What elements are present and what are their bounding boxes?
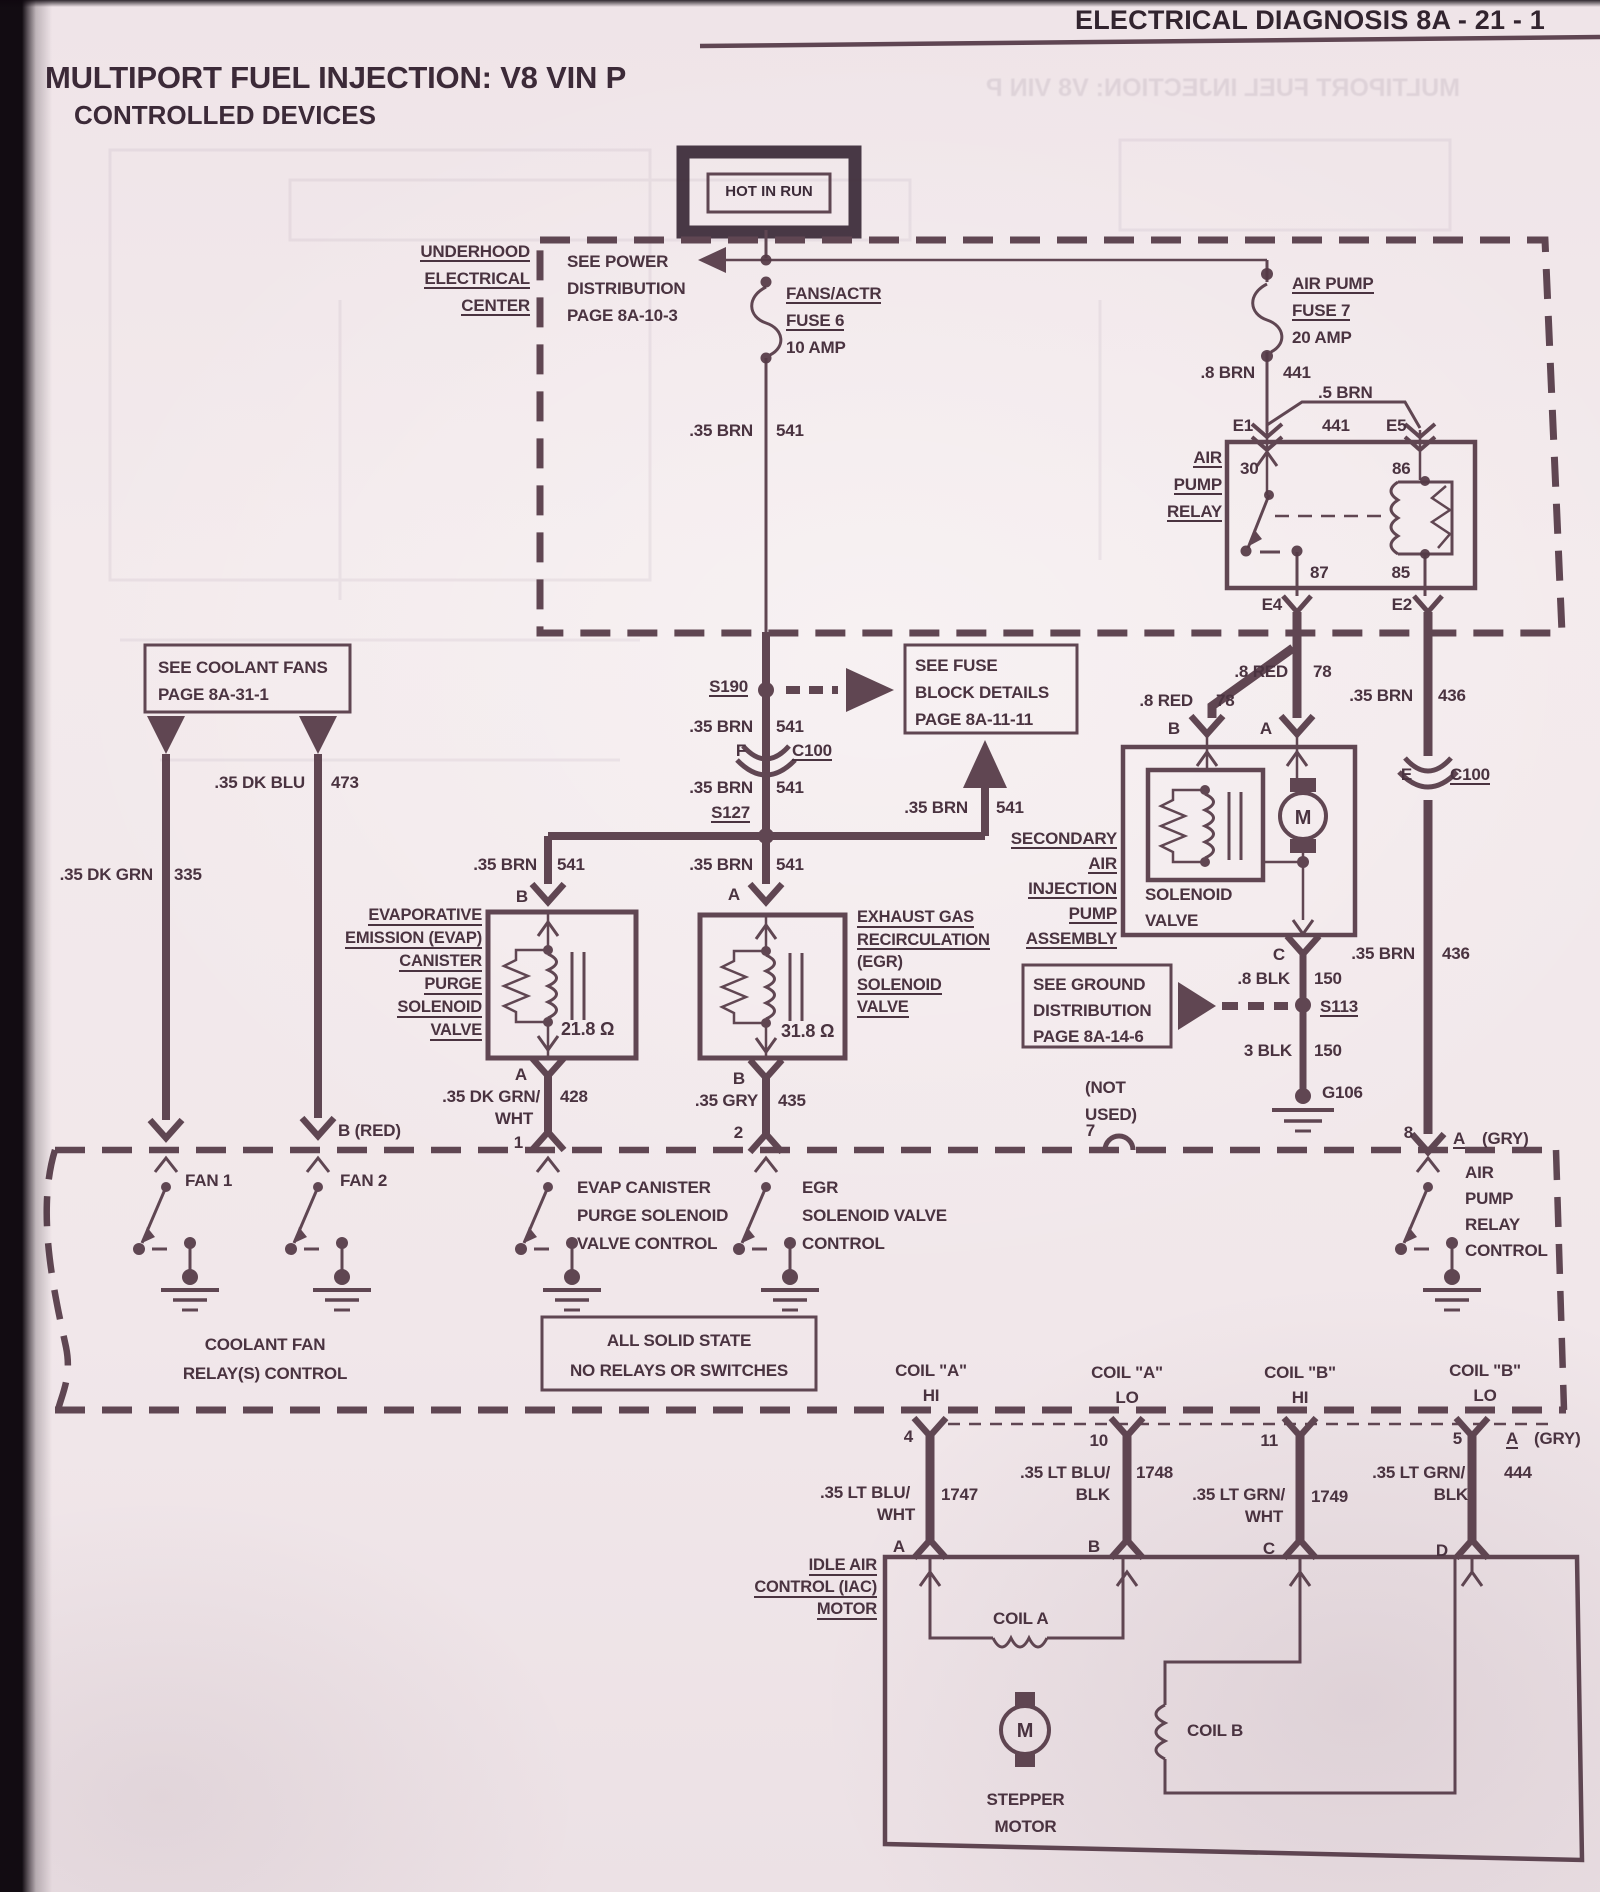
wire-wht: WHT	[451, 1106, 533, 1132]
wire-78-b: 78	[1216, 688, 1266, 714]
ecm-pin-a-gry-top: (GRY)	[1482, 1126, 1572, 1152]
ecm-pin-11: 11	[1251, 1428, 1278, 1454]
wire-35ltblublk2: BLK	[1028, 1482, 1110, 1508]
pin-e4: E4	[1238, 592, 1282, 618]
splice-s113: S113	[1320, 994, 1390, 1020]
ground-g106: G106	[1322, 1080, 1402, 1106]
relay-30: 30	[1240, 456, 1280, 482]
coil-b-winding	[1156, 1705, 1165, 1759]
ecm-pin-a-gry-bot: (GRY)	[1534, 1426, 1600, 1452]
coolant-fan-relay-control: COOLANT FANRELAY(S) CONTROL	[135, 1330, 395, 1388]
motor-m-assembly: M	[1283, 805, 1323, 831]
ecm-pin-10b: 10	[1081, 1428, 1108, 1454]
ecm-pin-a-gry-bot-a: A	[1506, 1426, 1530, 1452]
splice-s113-dot	[1295, 997, 1311, 1013]
evap-control-label: EVAP CANISTERPURGE SOLENOIDVALVE CONTROL	[577, 1174, 807, 1258]
wire-8brn: .8 BRN	[1145, 360, 1255, 386]
ecm-pin-4b: 4	[891, 1424, 913, 1450]
iac-conn-a: A	[883, 1534, 905, 1560]
wire-35brn-2: .35 BRN	[651, 714, 753, 740]
asm-conn-b: B	[1148, 716, 1180, 742]
wire-8red-a: .8 RED	[1196, 659, 1288, 685]
e4-chevron	[1283, 596, 1311, 612]
wire-1749: 1749	[1311, 1484, 1381, 1510]
wire-335: 335	[174, 862, 234, 888]
wire-78-a: 78	[1313, 659, 1363, 685]
relay-86: 86	[1392, 456, 1432, 482]
book-binding-shadow	[0, 0, 52, 1892]
wire-35brn436-dn: .35 BRN	[1313, 941, 1415, 967]
ecm-pin-1: 1	[501, 1130, 523, 1156]
fan1-label: FAN 1	[185, 1168, 275, 1194]
motor-m-stepper: M	[1005, 1718, 1045, 1744]
wire-35brn-left: .35 BRN	[435, 852, 537, 878]
coil-a-winding	[993, 1638, 1047, 1647]
g106-ground	[1272, 1110, 1334, 1131]
splice-s127: S127	[688, 800, 750, 826]
ecm-pin-8: 8	[1391, 1120, 1413, 1146]
splice-s190: S190	[686, 674, 748, 700]
wire-35ltgrnblk2: BLK	[1386, 1482, 1468, 1508]
pin-e2: E2	[1368, 592, 1412, 618]
stepper-motor-label: STEPPERMOTOR	[948, 1786, 1103, 1840]
fuse-block-arrow	[846, 668, 894, 712]
see-fuse-block: SEE FUSEBLOCK DETAILSPAGE 8A-11-11	[915, 652, 1090, 733]
fuse-block-up-arrow	[963, 740, 1007, 788]
wire-428: 428	[560, 1084, 620, 1110]
see-ground-distribution: SEE GROUNDDISTRIBUTIONPAGE 8A-14-6	[1033, 972, 1183, 1050]
wire-35ltbluwht2: WHT	[833, 1502, 915, 1528]
wire-444: 444	[1504, 1460, 1570, 1486]
coil-b-lo: COIL "B"LO	[1429, 1358, 1541, 1408]
wire-541-1: 541	[776, 418, 836, 444]
solenoid-valve-label: SOLENOIDVALVE	[1145, 882, 1285, 934]
wire-541-3: 541	[776, 775, 836, 801]
pin10-b-red: B (RED)	[338, 1118, 458, 1144]
wire-5brn: .5 BRN	[1318, 380, 1428, 406]
wire-435: 435	[778, 1088, 838, 1114]
wire-541-right: 541	[996, 795, 1056, 821]
hot-in-run-label: HOT IN RUN	[708, 183, 830, 200]
coil-b-label: COIL B	[1187, 1718, 1297, 1744]
page-top-edge-shadow	[0, 0, 1600, 7]
page-header: ELECTRICAL DIAGNOSIS 8A - 21 - 1	[640, 5, 1545, 36]
wire-541-4: 541	[776, 852, 836, 878]
e2-chevron	[1414, 596, 1442, 612]
fans-actr-fuse: FANS/ACTRFUSE 610 AMP	[786, 280, 946, 361]
iac-conn-c: C	[1253, 1536, 1275, 1562]
page-title: MULTIPORT FUEL INJECTION: V8 VIN P	[45, 60, 626, 96]
air-pump-fuse: AIR PUMPFUSE 720 AMP	[1292, 270, 1452, 351]
scanned-manual-page: MULTIPORT FUEL INJECTION: V8 VIN P	[0, 0, 1600, 1892]
ecm-pin-2: 2	[721, 1120, 743, 1146]
coil-a-label: COIL A	[993, 1606, 1103, 1632]
wire-8red-b: .8 RED	[1101, 688, 1193, 714]
egr-conn-a: A	[708, 882, 740, 908]
evap-conn-b: B	[496, 884, 528, 910]
all-solid-state: ALL SOLID STATENO RELAYS OR SWITCHES	[550, 1326, 808, 1386]
wire-541-left: 541	[557, 852, 617, 878]
fan2-label: FAN 2	[340, 1168, 430, 1194]
conn-c100b: C100	[1450, 762, 1520, 788]
wire-35dkblu: .35 DK BLU	[183, 770, 305, 796]
coil-a-lo: COIL "A"LO	[1071, 1360, 1183, 1410]
wire-35brn-3: .35 BRN	[651, 775, 753, 801]
ecm-pin-a-gry-top-a: A	[1453, 1126, 1477, 1152]
not-used: (NOTUSED)	[1085, 1074, 1175, 1128]
air-pump-relay-control: AIRPUMPRELAYCONTROL	[1465, 1160, 1585, 1264]
pin-e1: E1	[1205, 413, 1253, 439]
wire-35gry: .35 GRY	[656, 1088, 758, 1114]
wire-150b: 150	[1314, 1038, 1374, 1064]
coil-b-hi: COIL "B"HI	[1244, 1360, 1356, 1410]
asm-conn-c: C	[1253, 942, 1285, 968]
relay-87: 87	[1310, 560, 1350, 586]
iac-motor-label: IDLE AIRCONTROL (IAC)MOTOR	[733, 1554, 877, 1620]
page-subtitle: CONTROLLED DEVICES	[74, 100, 376, 131]
coil-a-hi: COIL "A"HI	[875, 1358, 987, 1408]
iac-conn-b: B	[1078, 1534, 1100, 1560]
pin-e5: E5	[1386, 413, 1446, 439]
air-pump-relay-box	[1227, 430, 1475, 588]
underhood-electrical-center: UNDERHOODELECTRICALCENTER	[330, 238, 530, 319]
evap-ohms: 21.8 Ω	[561, 1016, 651, 1042]
wire-541-2: 541	[776, 714, 836, 740]
wire-150a: 150	[1314, 966, 1374, 992]
evap-solenoid-label: EVAPORATIVEEMISSION (EVAP)CANISTERPURGES…	[330, 904, 482, 1042]
conn-e: E	[1380, 762, 1412, 788]
wire-35brn-1: .35 BRN	[651, 418, 753, 444]
secondary-air-label: SECONDARYAIRINJECTIONPUMPASSEMBLY	[1005, 826, 1117, 951]
wire-35ltgrnwht2: WHT	[1201, 1504, 1283, 1530]
wire-473: 473	[331, 770, 391, 796]
wire-8blk: .8 BLK	[1198, 966, 1290, 992]
wire-35brn-right: .35 BRN	[866, 795, 968, 821]
g106-dot	[1295, 1088, 1311, 1104]
air-pump-relay: AIRPUMPRELAY	[1088, 444, 1222, 525]
egr-control-label: EGRSOLENOID VALVECONTROL	[802, 1174, 1012, 1258]
ecm-pin-7: 7	[1073, 1118, 1095, 1144]
wire-436-dn: 436	[1442, 941, 1502, 967]
header-rule	[700, 37, 1600, 46]
conn-c100a: C100	[792, 738, 862, 764]
wire-35brn-4: .35 BRN	[651, 852, 753, 878]
relay-85: 85	[1368, 560, 1410, 586]
wire-35brn436-up: .35 BRN	[1311, 683, 1413, 709]
ecm-pin-5: 5	[1440, 1426, 1462, 1452]
asm-conn-a: A	[1240, 716, 1272, 742]
wire-3blk: 3 BLK	[1200, 1038, 1292, 1064]
egr-ohms: 31.8 Ω	[781, 1018, 871, 1044]
wire-436-up: 436	[1438, 683, 1498, 709]
see-power-distribution: SEE POWERDISTRIBUTIONPAGE 8A-10-3	[567, 248, 777, 329]
see-coolant-fans: SEE COOLANT FANSPAGE 8A-31-1	[158, 654, 343, 708]
conn-f: F	[714, 738, 746, 764]
iac-conn-d: D	[1426, 1538, 1448, 1564]
